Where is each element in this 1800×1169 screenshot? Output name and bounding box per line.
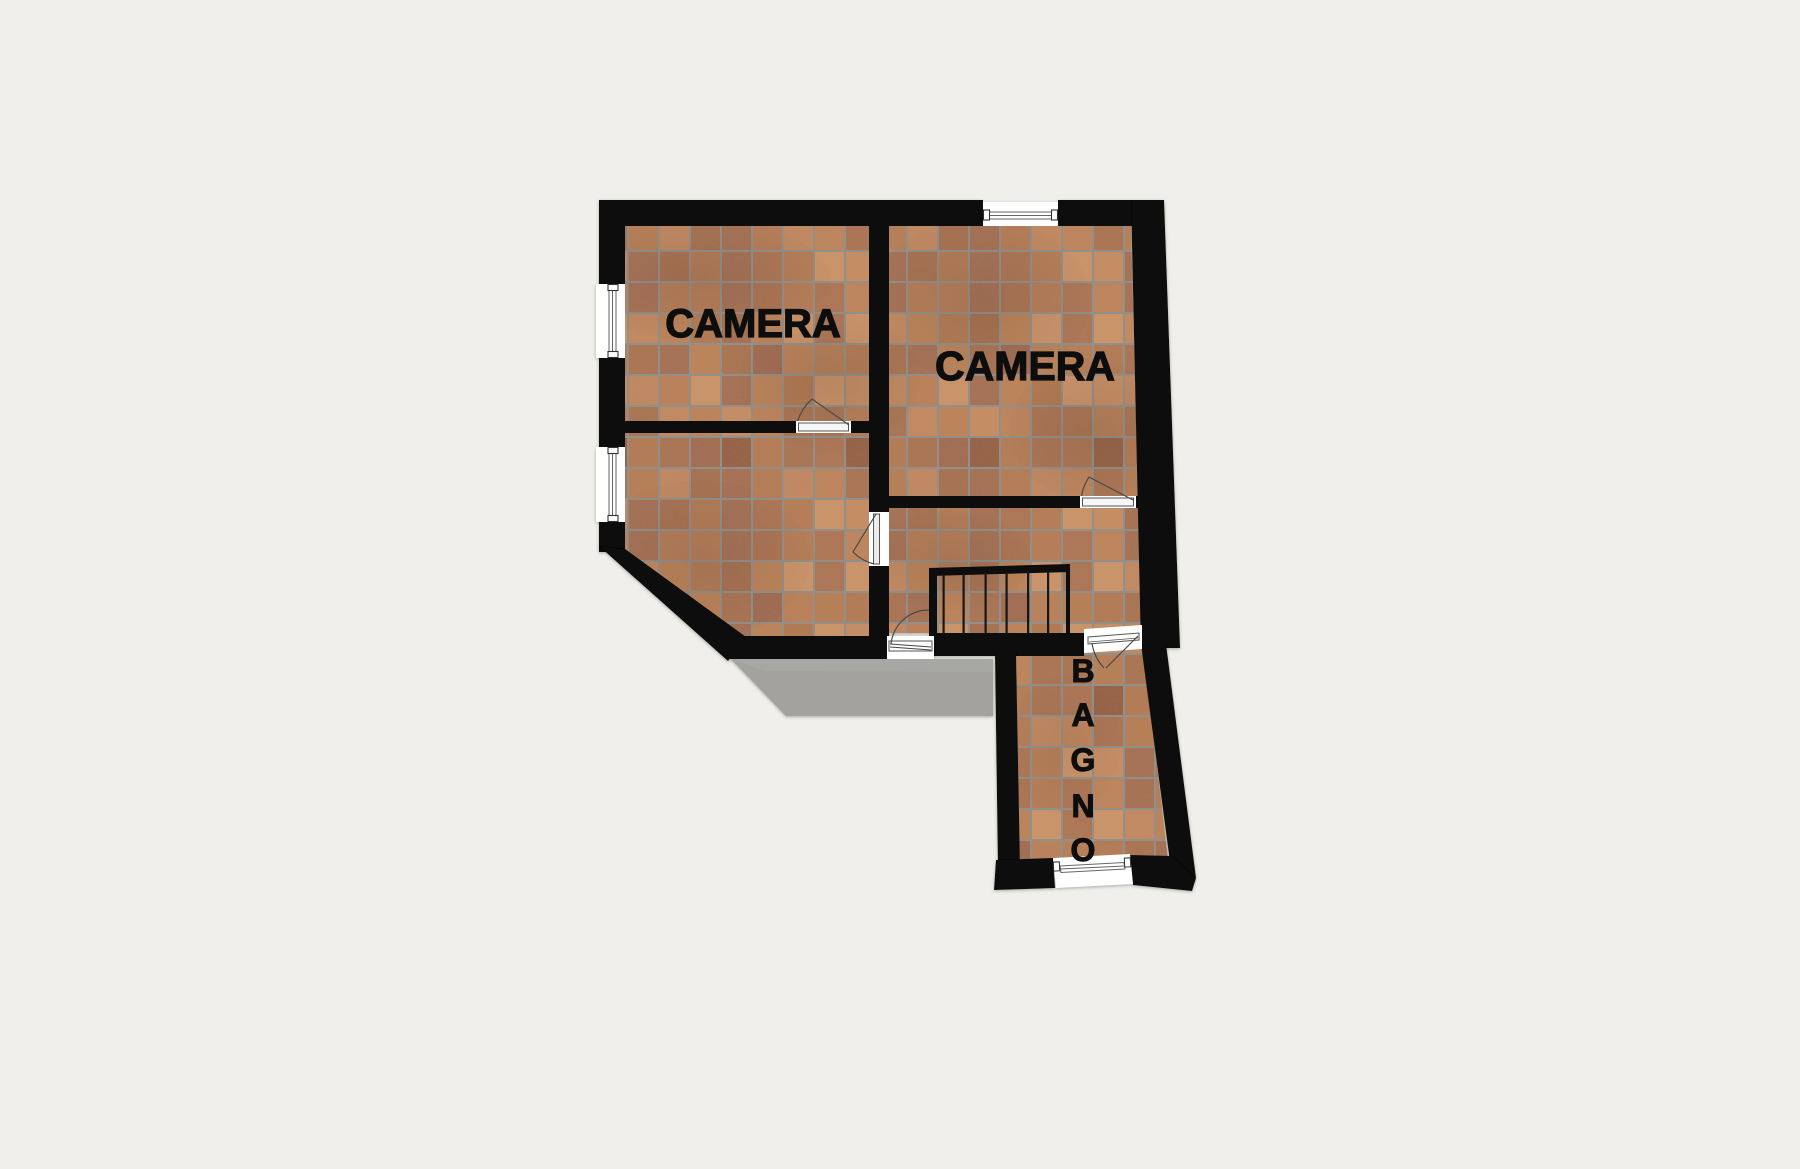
svg-text:CAMERA: CAMERA bbox=[665, 302, 841, 346]
svg-text:G: G bbox=[1071, 742, 1096, 778]
svg-text:B: B bbox=[1071, 653, 1094, 689]
svg-text:N: N bbox=[1071, 788, 1094, 824]
svg-text:A: A bbox=[1071, 697, 1094, 733]
svg-text:CAMERA: CAMERA bbox=[935, 343, 1115, 389]
svg-text:O: O bbox=[1071, 832, 1096, 868]
